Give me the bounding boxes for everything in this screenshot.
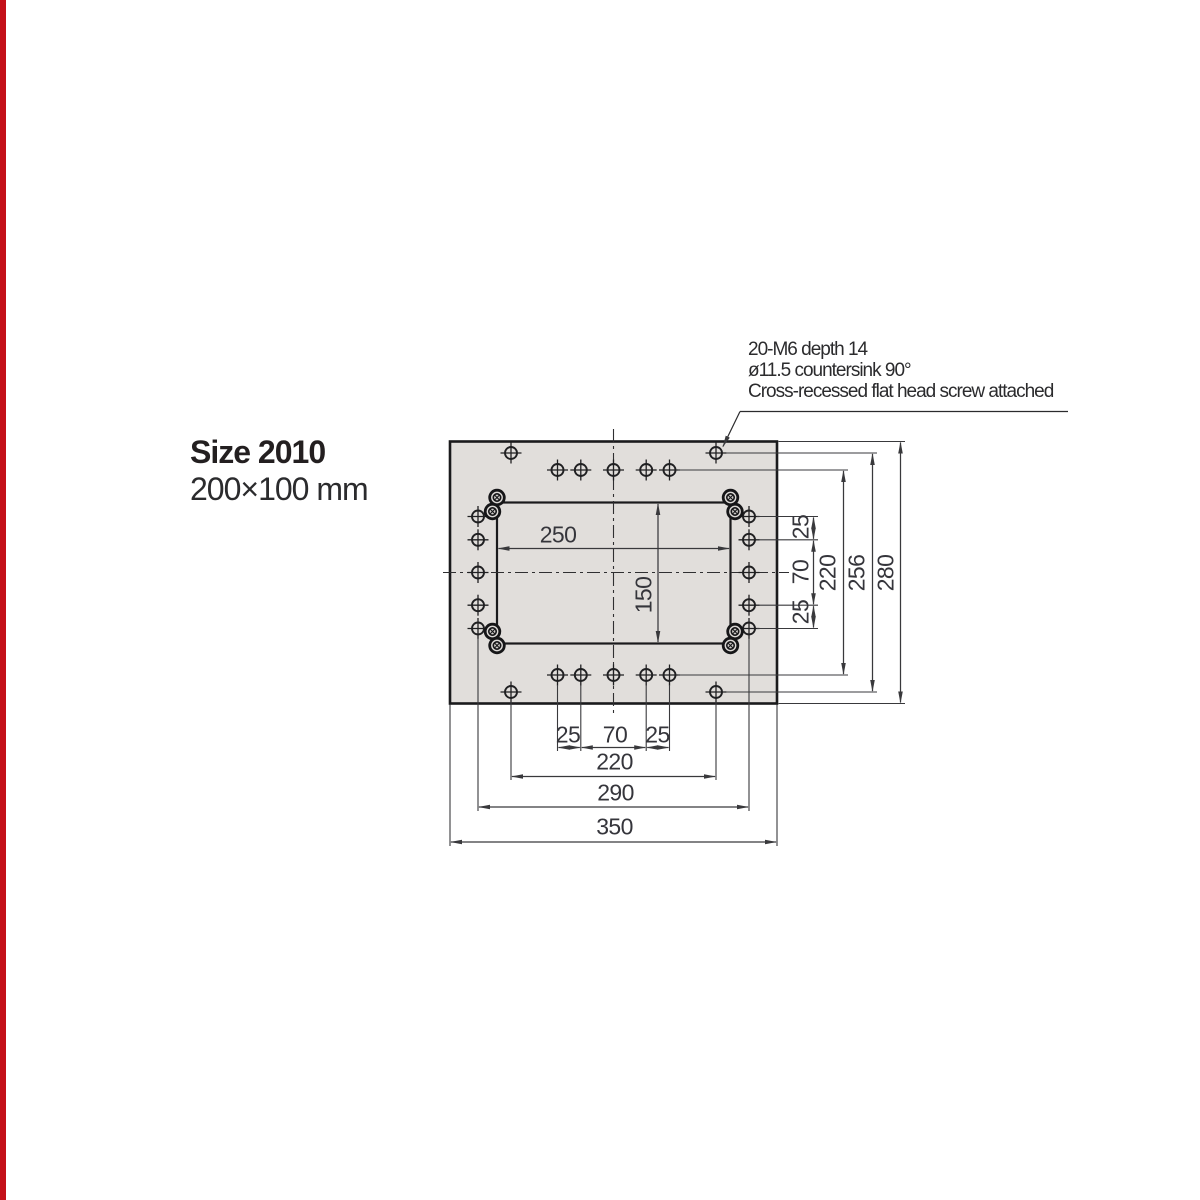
dim-label-plate-width: 350 [596, 814, 633, 841]
dim-label-right-pitch-mid: 70 [787, 559, 814, 583]
page: Size 2010 200×100 mm 20-M6 depth 14 ø11.… [0, 0, 1200, 1200]
dim-label-right-pitch-bottom: 25 [787, 600, 814, 624]
dim-label-bottom-outer-holes: 220 [596, 749, 633, 776]
technical-drawing [0, 0, 1200, 1200]
dim-label-opening-width: 250 [540, 521, 577, 548]
dim-label-right-pitch-top: 25 [787, 515, 814, 539]
dim-label-plate-height: 280 [873, 554, 900, 591]
dim-label-bottom-pitch-mid: 70 [603, 721, 627, 748]
dim-label-opening-height: 150 [630, 577, 657, 614]
dim-label-side-columns: 290 [597, 779, 634, 806]
dim-label-bottom-pitch-left: 25 [556, 721, 580, 748]
dim-label-bottom-pitch-right: 25 [645, 721, 669, 748]
dim-label-right-inner-rows: 220 [815, 555, 842, 592]
dim-label-right-outer-holes: 256 [844, 555, 871, 592]
